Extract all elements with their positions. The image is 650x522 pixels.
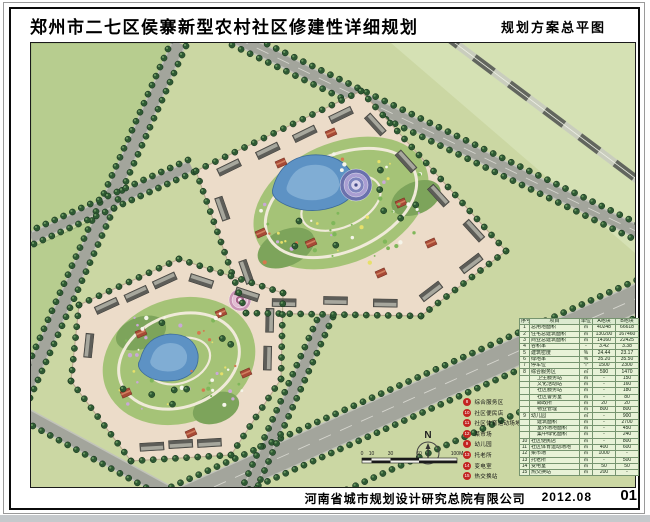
legend-label: 社区体育运动场地 [475, 419, 521, 427]
legend-label: 社区便民店 [475, 409, 504, 417]
scale-tick-30: 30 [388, 451, 394, 457]
table-cell: - [616, 470, 639, 476]
legend-label: 菜市场 [475, 430, 492, 438]
legend-item: 10社区便民店 [463, 409, 521, 417]
legend-item: 15热交换站 [463, 472, 521, 480]
table-cell: 200 [593, 470, 616, 476]
legend-badge-icon: 11 [463, 419, 471, 427]
north-label: N [424, 430, 431, 441]
table-cell: ㎡ [580, 470, 593, 476]
legend-label: 幼儿园 [475, 440, 492, 448]
scale-tick-60: 60 [416, 451, 422, 457]
indicator-table: 序号项目单位A地块B地块 1总用地面积㎡40248666182住宅总建筑面积㎡1… [519, 318, 639, 476]
design-institute: 河南省城市规划设计研究总院有限公司 [305, 490, 526, 507]
scale-tick-10: 10 [369, 451, 375, 457]
table-header: 单位 [580, 319, 593, 325]
legend-badge-icon: 9 [463, 440, 471, 448]
sheet-number: 01 [620, 487, 637, 504]
legend-badge-icon: 8 [463, 398, 471, 406]
legend-item: 9幼儿园 [463, 440, 521, 448]
legend-item: 8综合服务区 [463, 398, 521, 406]
indicator-table-body: 1总用地面积㎡40248666182住宅总建筑面积㎡1302001674603商… [520, 325, 639, 476]
legend-item: 12菜市场 [463, 430, 521, 438]
legend-item: 14变电室 [463, 462, 521, 470]
title-block: 河南省城市规划设计研究总院有限公司 2012.08 [305, 490, 592, 507]
legend-badge-icon: 15 [463, 472, 471, 480]
table-cell: 167460 [616, 331, 639, 337]
table-cell: 15 [520, 470, 530, 476]
legend-badge-icon: 12 [463, 430, 471, 438]
scale-tick-100: 100M [451, 451, 464, 457]
legend-badge-icon: 13 [463, 451, 471, 459]
table-header: 序号 [520, 319, 530, 325]
drawing-name: 规划方案总平图 [501, 17, 606, 36]
legend-item: 11社区体育运动场地 [463, 419, 521, 427]
table-row: 15热交换站㎡200- [520, 470, 639, 476]
date: 2012.08 [542, 490, 592, 507]
scan-edge-strip [0, 515, 650, 522]
legend-label: 托老所 [475, 451, 492, 459]
legend-label: 综合服务区 [475, 398, 504, 406]
table-cell: 热交换站 [530, 470, 580, 476]
legend-badge-icon: 10 [463, 409, 471, 417]
legend-label: 变电室 [475, 462, 492, 470]
legend-item: 13托老所 [463, 451, 521, 459]
legend: 8综合服务区10社区便民店11社区体育运动场地12菜市场9幼儿园13托老所14变… [463, 398, 521, 483]
legend-label: 热交换站 [475, 472, 498, 480]
page-title: 郑州市二七区侯寨新型农村社区修建性详细规划 [30, 13, 419, 38]
legend-badge-icon: 14 [463, 462, 471, 470]
table-cell: 130200 [593, 331, 616, 337]
scale-tick-0: 0 [361, 451, 364, 457]
